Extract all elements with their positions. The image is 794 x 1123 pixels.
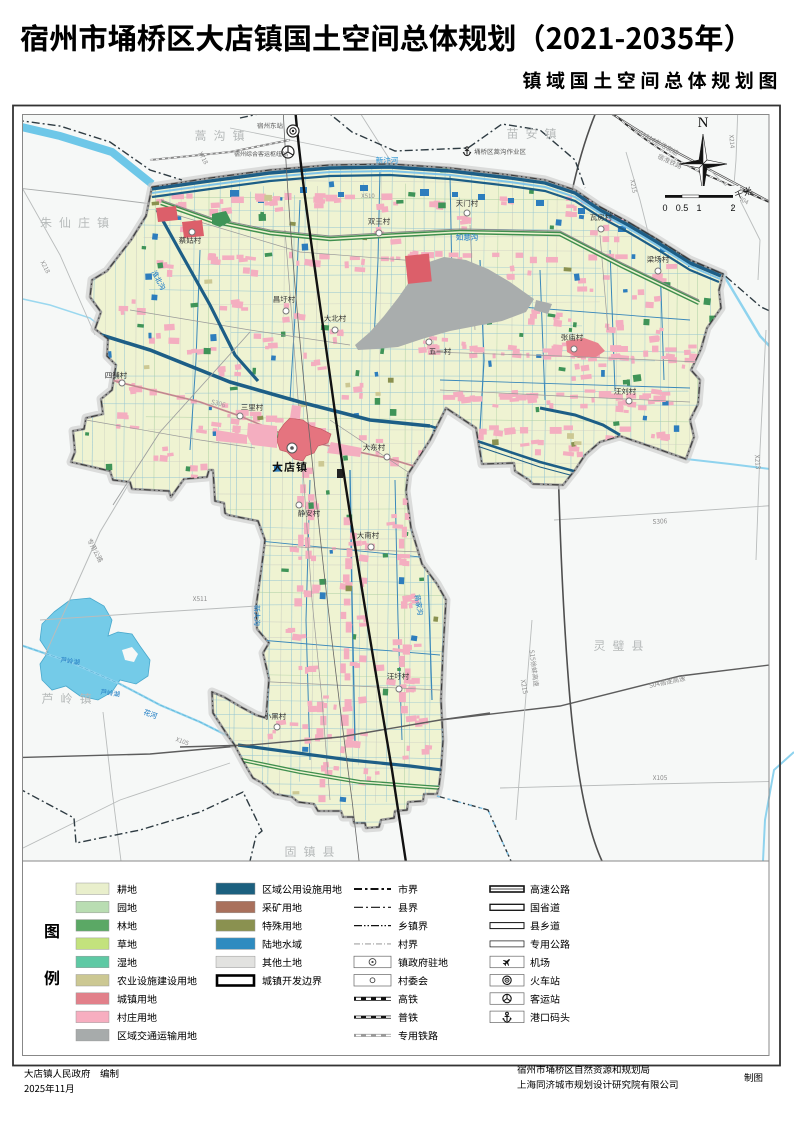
svg-text:2: 2 xyxy=(730,203,735,213)
svg-text:1: 1 xyxy=(696,203,701,213)
svg-text:0: 0 xyxy=(662,203,667,213)
svg-text:0.5: 0.5 xyxy=(676,203,689,213)
svg-text:N: N xyxy=(698,115,709,131)
